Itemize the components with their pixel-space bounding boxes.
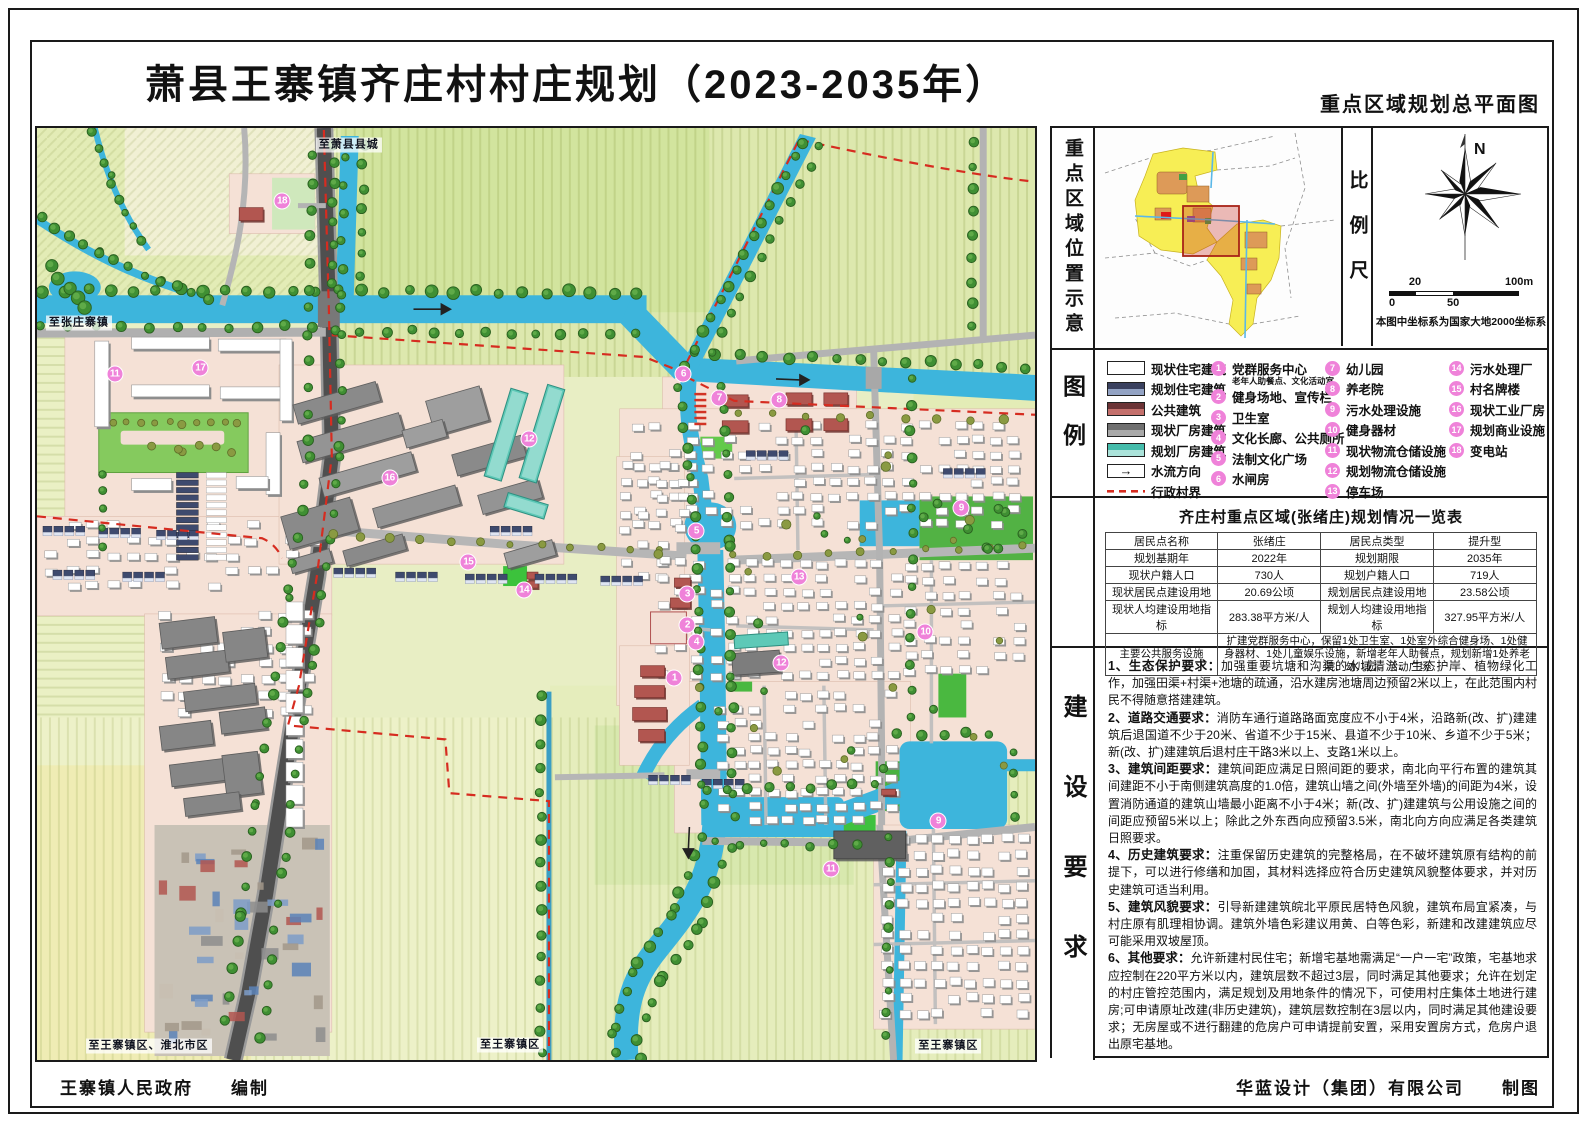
legend-swatch-boundary-icon	[1107, 484, 1145, 498]
scale-tick-20: 20	[1409, 276, 1421, 288]
legend-item: 公共建筑	[1107, 399, 1226, 420]
table-value: 283.38平方米/人	[1218, 601, 1321, 634]
map-marker-11: 11	[822, 860, 839, 877]
legend-item: 12规划物流仓储设施	[1325, 461, 1446, 482]
legend-item-label: 污水处理厂	[1470, 359, 1533, 378]
table-title: 齐庄村重点区域(张绪庄)规划情况一览表	[1105, 506, 1537, 527]
map-marker-6: 6	[675, 365, 692, 382]
map-overlay: 18111712161514678951332411210911至萧县县城至张庄…	[37, 128, 1035, 1060]
table-value: 719人	[1433, 567, 1536, 584]
legend-point-icon: 12	[1325, 463, 1340, 478]
page-title: 萧县王寨镇齐庄村村庄规划（2023-2035年）	[145, 52, 1008, 110]
drawn-by-credit: 华蓝设计（集团）有限公司 制图	[1236, 1074, 1540, 1099]
compass-n-label: N	[1474, 141, 1486, 158]
scale-tick-50: 50	[1447, 297, 1459, 309]
legend-item: 11现状物流仓储设施	[1325, 440, 1446, 461]
requirement-item: 4、历史建筑要求：注重保留历史建筑的完整格局，在不破坏建筑原有结构的前提下，可以…	[1108, 847, 1537, 899]
requirement-head: 3、建筑间距要求：	[1108, 762, 1218, 776]
table-row: 居民点名称张绪庄居民点类型提升型	[1106, 533, 1537, 550]
map-marker-1: 1	[666, 669, 683, 686]
map-marker-2: 2	[679, 616, 696, 633]
legend-point-icon: 2	[1211, 389, 1226, 404]
legend-item: 17规划商业设施	[1449, 420, 1545, 441]
table-label: 规划居民点建设用地	[1321, 584, 1433, 601]
legend-point-icon: 14	[1449, 361, 1464, 376]
table-label: 现状人均建设用地指标	[1106, 601, 1218, 634]
map-direction-label: 至王寨镇区	[915, 1039, 981, 1054]
legend-swatch-teal-icon	[1107, 443, 1145, 457]
map-marker-5: 5	[688, 523, 705, 540]
legend-swatch-flow-icon: →	[1107, 464, 1145, 478]
legend-point-icon: 8	[1325, 381, 1340, 396]
legend-item-label: 幼儿园	[1346, 359, 1384, 378]
drawing-subtitle: 重点区域规划总平面图	[1150, 88, 1540, 117]
legend-item-label: 污水处理设施	[1346, 400, 1421, 419]
map-marker-4: 4	[688, 633, 705, 650]
legend-item-label: 水流方向	[1151, 461, 1201, 480]
map-marker-16: 16	[381, 470, 398, 487]
table-label: 规划户籍人口	[1321, 567, 1433, 584]
legend-point-icon: 18	[1449, 443, 1464, 458]
legend-point-icon: 17	[1449, 422, 1464, 437]
info-panel: 重点区域位置示意	[1050, 126, 1549, 1058]
main-plan-map: 18111712161514678951332411210911至萧县县城至张庄…	[35, 126, 1037, 1062]
map-direction-label: 至王寨镇区、淮北市区	[86, 1039, 212, 1054]
map-marker-17: 17	[192, 359, 209, 376]
legend-point-icon: 5	[1211, 451, 1226, 466]
coordinate-system-note: 本图中坐标系为国家大地2000坐标系	[1373, 314, 1549, 329]
legend-point-icon: 6	[1211, 471, 1226, 486]
map-direction-label: 至张庄寨镇	[46, 316, 112, 331]
legend-item-label: 健身场地、宣传栏	[1232, 387, 1332, 406]
legend-item-label: 变电站	[1470, 441, 1508, 460]
legend-swatch-gray-icon	[1107, 423, 1145, 437]
legend-item: 14污水处理厂	[1449, 358, 1545, 379]
legend-section-label: 图例	[1052, 350, 1095, 496]
table-value: 23.58公顷	[1433, 584, 1536, 601]
legend-item: 15村名牌楼	[1449, 379, 1545, 400]
location-inset-map	[1095, 128, 1343, 346]
legend-swatch-column: 现状住宅建筑规划住宅建筑公共建筑现状厂房建筑规划厂房建筑→水流方向行政村界	[1107, 358, 1226, 502]
legend-item-label: 健身器材	[1346, 420, 1396, 439]
legend-item-label: 现状物流仓储设施	[1346, 441, 1446, 460]
map-marker-14: 14	[516, 582, 533, 599]
legend-item: →水流方向	[1107, 461, 1226, 482]
table-label: 现状居民点建设用地	[1106, 584, 1218, 601]
legend-point-icon: 9	[1325, 402, 1340, 417]
requirement-head: 6、其他要求：	[1108, 951, 1191, 965]
legend-item: 16现状工业厂房	[1449, 399, 1545, 420]
construction-requirements: 1、生态保护要求：加强重要坑塘和沟渠的水域清淤、生态护岸、植物绿化工作，加强田渠…	[1095, 648, 1547, 1060]
table-label: 居民点名称	[1106, 533, 1218, 550]
table-value: 730人	[1218, 567, 1321, 584]
legend-point-icon: 11	[1325, 443, 1340, 458]
map-marker-7: 7	[711, 389, 728, 406]
legend-item: 9污水处理设施	[1325, 399, 1446, 420]
legend-points-column-3: 14污水处理厂15村名牌楼16现状工业厂房17规划商业设施18变电站	[1449, 358, 1545, 461]
legend-point-icon: 16	[1449, 402, 1464, 417]
legend-point-icon: 4	[1211, 430, 1226, 445]
legend-item: 8养老院	[1325, 379, 1446, 400]
inset-map-drawing	[1095, 128, 1343, 344]
table-value: 20.69公顷	[1218, 584, 1321, 601]
legend-point-icon: 3	[1211, 410, 1226, 425]
map-marker-15: 15	[460, 554, 477, 571]
legend-point-icon: 1	[1211, 361, 1226, 376]
legend-item-label: 水闸房	[1232, 469, 1270, 488]
table-row: 现状居民点建设用地20.69公顷规划居民点建设用地23.58公顷	[1106, 584, 1537, 601]
table-label: 规划基期年	[1106, 550, 1218, 567]
legend-item: 规划住宅建筑	[1107, 379, 1226, 400]
legend-points-column-2: 7幼儿园8养老院9污水处理设施10健身器材11现状物流仓储设施12规划物流仓储设…	[1325, 358, 1446, 502]
map-marker-18: 18	[274, 192, 291, 209]
scale-label: 比例尺	[1343, 128, 1373, 346]
legend-point-icon: 13	[1325, 484, 1340, 499]
map-marker-10: 10	[917, 623, 934, 640]
scale-tick-0: 0	[1389, 297, 1395, 309]
legend-swatch-red-icon	[1107, 402, 1145, 416]
legend-item-label: 法制文化广场	[1232, 449, 1307, 468]
map-marker-8: 8	[771, 391, 788, 408]
compass-rose-icon: N	[1373, 128, 1549, 268]
legend-swatch-white-icon	[1107, 361, 1145, 375]
table-value: 张绪庄	[1218, 533, 1321, 550]
requirements-section-label: 建设要求	[1052, 648, 1095, 1060]
legend-item-label: 公共建筑	[1151, 400, 1201, 419]
requirement-head: 4、历史建筑要求：	[1108, 848, 1218, 862]
requirement-item: 2、道路交通要求：消防车通行道路路面宽度应不小于4米，沿路新(改、扩)建建筑后退…	[1108, 710, 1537, 762]
scale-bar: 20 100m 0 50	[1389, 278, 1529, 312]
legend-point-icon: 10	[1325, 422, 1340, 437]
legend-item-label: 村名牌楼	[1470, 379, 1520, 398]
location-section-label: 重点区域位置示意	[1052, 128, 1095, 348]
legend-point-icon: 7	[1325, 361, 1340, 376]
legend-item-label: 规划物流仓储设施	[1346, 461, 1446, 480]
requirement-head: 5、建筑风貌要求：	[1108, 900, 1218, 914]
legend-item-label: 卫生室	[1232, 408, 1270, 427]
legend-item-label: 养老院	[1346, 379, 1384, 398]
legend-item: 规划厂房建筑	[1107, 440, 1226, 461]
table-row: 现状户籍人口730人规划户籍人口719人	[1106, 567, 1537, 584]
map-marker-12: 12	[521, 430, 538, 447]
table-value: 提升型	[1433, 533, 1536, 550]
map-marker-9: 9	[953, 500, 970, 517]
table-row: 现状人均建设用地指标283.38平方米/人规划人均建设用地指标327.95平方米…	[1106, 601, 1537, 634]
map-marker-11: 11	[106, 365, 123, 382]
table-value: 2035年	[1433, 550, 1536, 567]
requirement-item: 5、建筑风貌要求：引导新建建筑皖北平原民居特色风貌，建筑布局宜紧凑，与村庄原有肌…	[1108, 899, 1537, 951]
requirement-item: 6、其他要求：允许新建村民住宅；新增宅基地需满足“一户一宅”政策，宅基地求应控制…	[1108, 950, 1537, 1053]
legend-swatch-navy-icon	[1107, 382, 1145, 396]
location-section: 重点区域位置示意	[1052, 128, 1547, 350]
table-value: 2022年	[1218, 550, 1321, 567]
table-label: 现状户籍人口	[1106, 567, 1218, 584]
table-label: 规划人均建设用地指标	[1321, 601, 1433, 634]
compass-area: N 20 100m 0 50 本图中坐标系为国家大地2000坐标系	[1373, 128, 1549, 346]
table-row: 规划基期年2022年规划期限2035年	[1106, 550, 1537, 567]
legend-item-label: 规划商业设施	[1470, 420, 1545, 439]
map-direction-label: 至王寨镇区	[477, 1038, 543, 1053]
table-value: 327.95平方米/人	[1433, 601, 1536, 634]
legend: 现状住宅建筑规划住宅建筑公共建筑现状厂房建筑规划厂房建筑→水流方向行政村界 1党…	[1095, 350, 1547, 498]
map-marker-13: 13	[790, 569, 807, 586]
scale-tick-100m: 100m	[1505, 276, 1533, 288]
requirement-head: 1、生态保护要求：	[1108, 659, 1221, 673]
table-section-label	[1052, 498, 1095, 646]
map-marker-3: 3	[679, 586, 696, 603]
legend-item-label: 现状工业厂房	[1470, 400, 1545, 419]
legend-item: 18变电站	[1449, 440, 1545, 461]
requirement-item: 1、生态保护要求：加强重要坑塘和沟渠的水域清淤、生态护岸、植物绿化工作，加强田渠…	[1108, 658, 1537, 710]
map-direction-label: 至萧县县城	[316, 137, 382, 152]
prepared-by-credit: 王寨镇人民政府 编制	[60, 1074, 269, 1099]
table-label: 规划期限	[1321, 550, 1433, 567]
legend-item: 现状住宅建筑	[1107, 358, 1226, 379]
map-marker-12: 12	[773, 654, 790, 671]
legend-item: 7幼儿园	[1325, 358, 1446, 379]
legend-item: 现状厂房建筑	[1107, 420, 1226, 441]
requirement-head: 2、道路交通要求：	[1108, 711, 1217, 725]
map-marker-9: 9	[930, 813, 947, 830]
requirement-item: 3、建筑间距要求：建筑间距应满足日照间距的要求，南北向平行布置的建筑其间建距不小…	[1108, 761, 1537, 847]
legend-point-icon: 15	[1449, 381, 1464, 396]
table-label: 居民点类型	[1321, 533, 1433, 550]
legend-item: 10健身器材	[1325, 420, 1446, 441]
legend-section: 图例 现状住宅建筑规划住宅建筑公共建筑现状厂房建筑规划厂房建筑→水流方向行政村界…	[1052, 350, 1547, 498]
requirements-section: 建设要求 1、生态保护要求：加强重要坑塘和沟渠的水域清淤、生态护岸、植物绿化工作…	[1052, 648, 1547, 1060]
focus-area-box	[1183, 206, 1239, 256]
table-section: 齐庄村重点区域(张绪庄)规划情况一览表 居民点名称张绪庄居民点类型提升型规划基期…	[1052, 498, 1547, 648]
